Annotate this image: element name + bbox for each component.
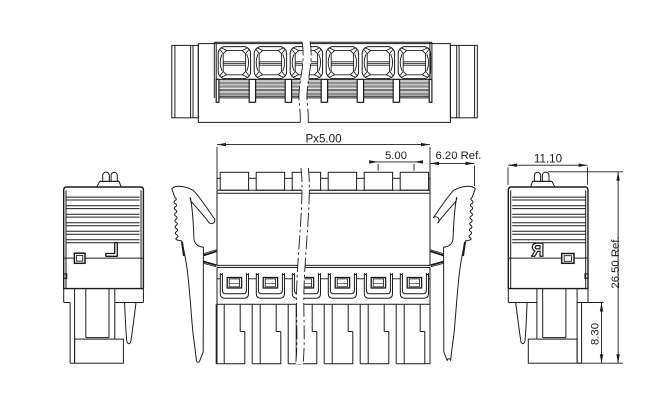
svg-text:26.50 Ref.: 26.50 Ref.	[610, 236, 622, 288]
svg-text:11.10: 11.10	[534, 152, 562, 165]
svg-text:6.20 Ref.: 6.20 Ref.	[436, 150, 482, 162]
svg-text:5.00: 5.00	[385, 150, 407, 162]
svg-text:8.30: 8.30	[590, 323, 602, 345]
svg-text:Px5.00: Px5.00	[305, 132, 341, 145]
